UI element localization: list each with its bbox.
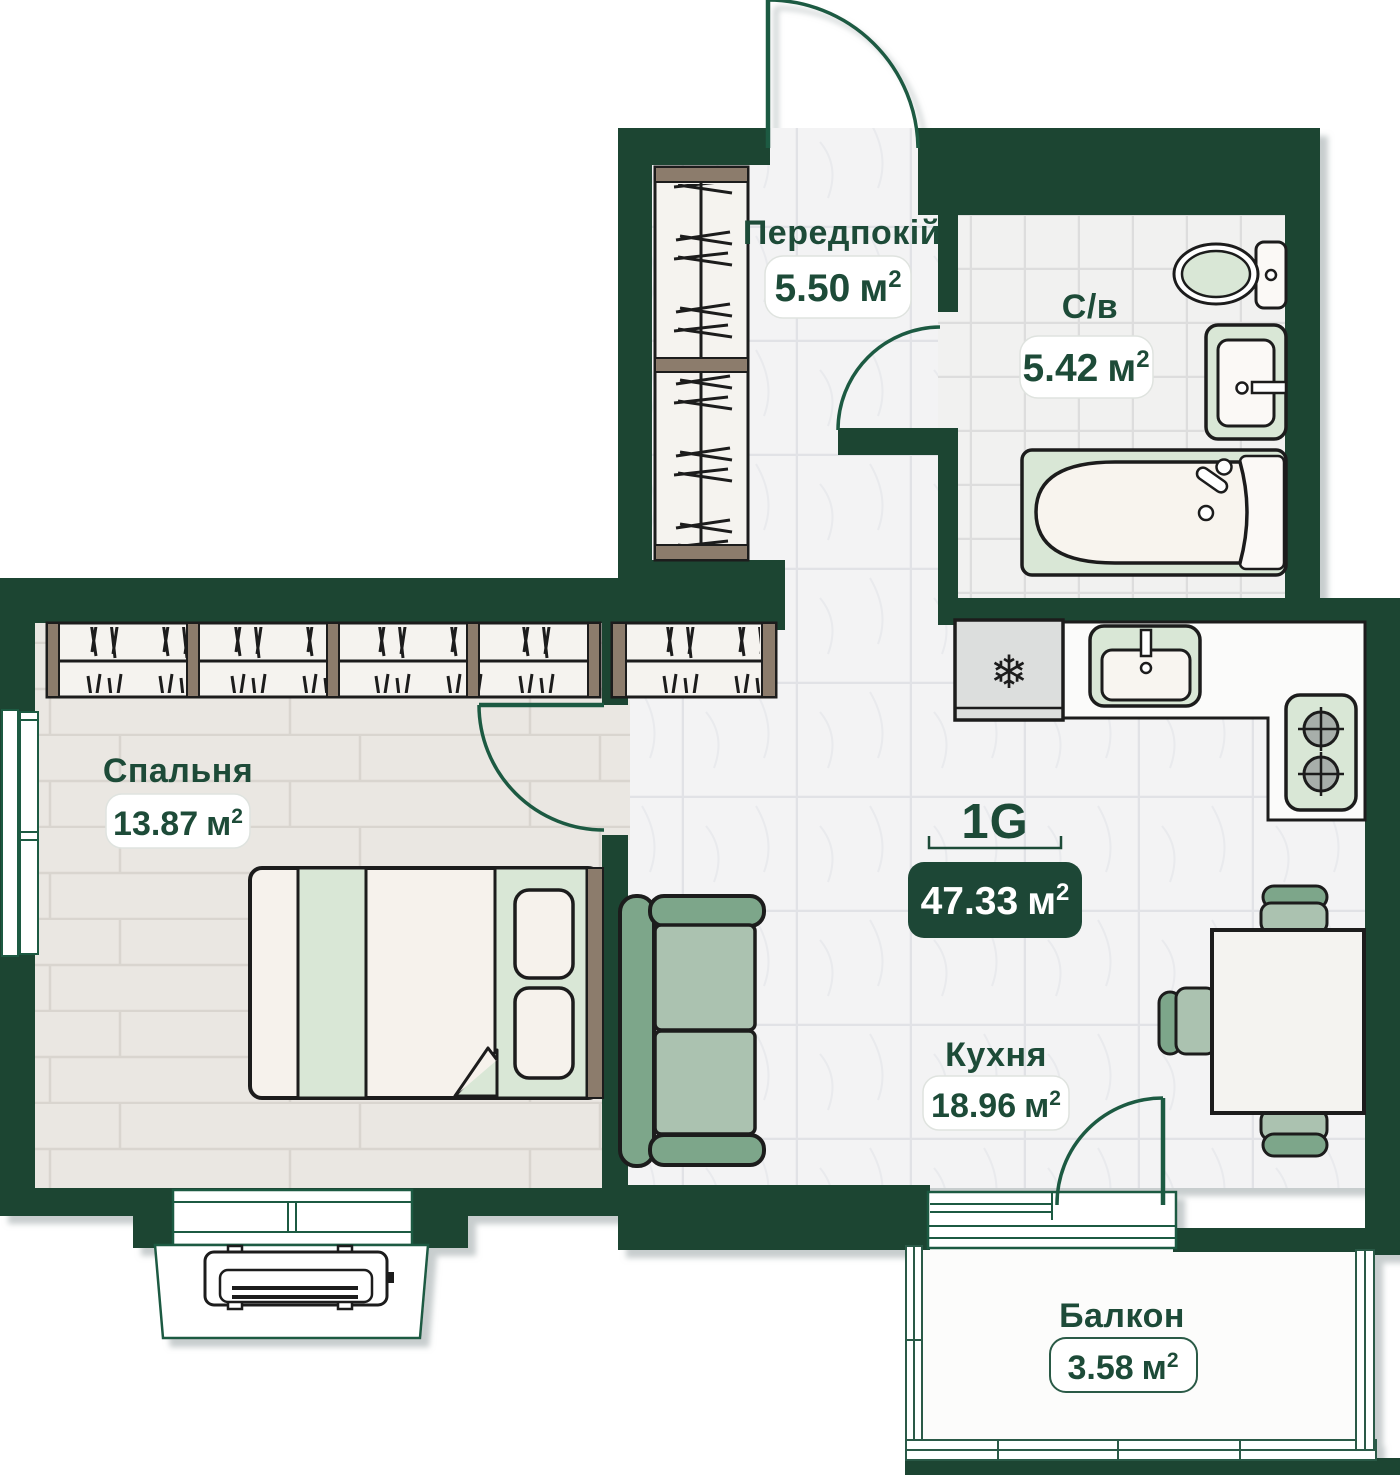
sofa-backrest <box>620 896 654 1166</box>
floor-plan-svg: ❄ <box>0 0 1400 1475</box>
bathroom-sink <box>1206 325 1286 439</box>
balcony-label: Балкон <box>1059 1297 1185 1335</box>
kitchen-area: 18.96м2 <box>931 1087 1061 1125</box>
bathtub-drain <box>1199 506 1213 520</box>
bedroom-area: 13.87м2 <box>113 805 243 843</box>
ac-unit-bay <box>155 1245 428 1338</box>
toilet <box>1174 242 1286 308</box>
wall-hallway-left <box>618 128 652 630</box>
wall-kitchen-bottom-left <box>618 1185 930 1250</box>
bedroom-left-window <box>2 710 38 956</box>
wall-bedroom-window-flank-right <box>410 1188 468 1248</box>
wall-hallway-bottom <box>618 560 785 630</box>
ac-unit <box>205 1246 394 1309</box>
bed-headboard <box>587 868 603 1098</box>
sofa-armrest <box>650 896 764 926</box>
bathroom-door-threshold <box>938 312 960 430</box>
bedroom-label: Спальня <box>103 752 253 790</box>
kitchen-sink <box>1090 626 1200 706</box>
fridge: ❄ <box>955 620 1063 720</box>
wall-bathroom-top <box>918 128 1320 215</box>
wall-bedroom-top <box>0 578 628 623</box>
hallway-label: Передпокій <box>743 214 941 252</box>
sofa-armrest <box>650 1135 764 1165</box>
dining-table <box>1212 930 1364 1113</box>
bed-pillow <box>515 988 573 1078</box>
floor-plan-page: ❄ <box>0 0 1400 1475</box>
entrance-door-arc <box>768 0 918 148</box>
hallway-area: 5.50м2 <box>774 266 901 310</box>
entrance-threshold <box>765 128 918 168</box>
bathroom-area: 5.42м2 <box>1022 346 1149 390</box>
bathroom-label: С/в <box>1062 288 1118 326</box>
sofa-seat <box>655 1031 755 1134</box>
wall-hall-bathroom-stub <box>838 428 958 455</box>
wall-bathroom-right <box>1285 128 1320 625</box>
wall-bedroom-window-flank-left <box>133 1188 175 1248</box>
kitchen-label: Кухня <box>945 1036 1047 1074</box>
bed-pillow <box>515 890 573 978</box>
living-wardrobe <box>612 623 776 697</box>
hallway-wardrobe <box>655 167 748 560</box>
bed <box>250 868 603 1098</box>
balcony-area: 3.58м2 <box>1067 1349 1178 1387</box>
bedroom-bottom-window <box>173 1190 412 1245</box>
apartment-code: 1G <box>961 795 1028 849</box>
fridge-snowflake-icon: ❄ <box>990 646 1029 698</box>
sofa-seat <box>655 925 755 1030</box>
stove <box>1286 695 1356 810</box>
sofa <box>620 896 764 1166</box>
wall-kitchen-bottom-right <box>1173 1228 1366 1252</box>
bedroom-wardrobe-row <box>47 623 600 697</box>
bed-blanket-stripe <box>298 868 366 1098</box>
chair-back <box>1263 1134 1327 1156</box>
balcony-window-sill <box>928 1192 1176 1248</box>
wall-hall-bathroom-lower <box>938 455 958 605</box>
wall-right-outer <box>1365 598 1400 1255</box>
ac-knob <box>386 1272 394 1283</box>
total-area: 47.33м2 <box>921 879 1070 923</box>
bedroom-door-threshold <box>602 700 630 840</box>
bathtub <box>1022 450 1286 575</box>
